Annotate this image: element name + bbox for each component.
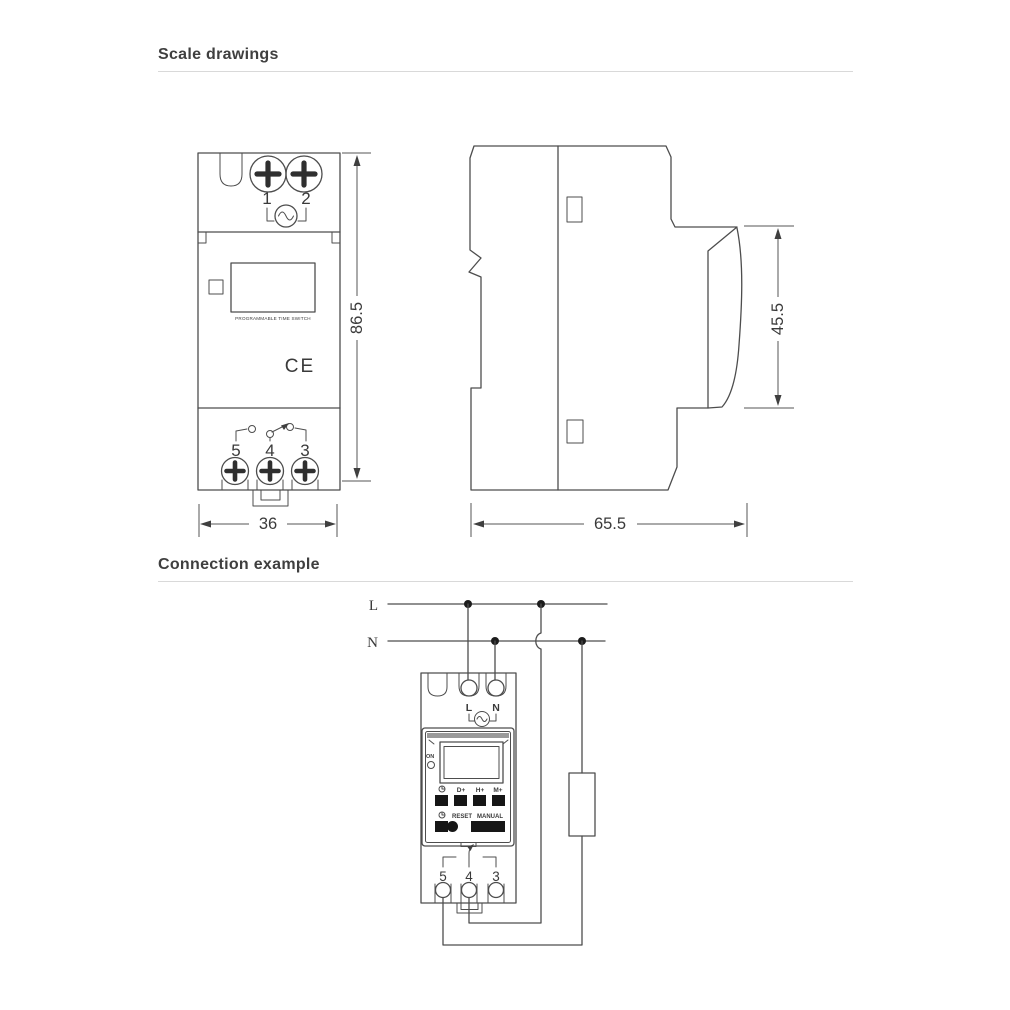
- output-5-label: 5: [439, 869, 447, 884]
- side-notch: [332, 232, 340, 243]
- phillips-screw-icon: [257, 163, 279, 185]
- screw-terminal: [257, 458, 284, 491]
- timer-key: [435, 821, 448, 832]
- timer-icon: [439, 812, 445, 818]
- terminal-slot: [220, 153, 242, 186]
- mounting-hole: [567, 420, 583, 443]
- minute-key-label: M+: [493, 787, 502, 794]
- terminal-1-label: 1: [262, 189, 271, 208]
- dimension-depth: 65.5: [471, 503, 747, 537]
- dimension-width: 36: [199, 504, 337, 537]
- clock-icon: [439, 786, 445, 792]
- dimension-width-value: 36: [259, 515, 277, 533]
- output-terminal-4: [462, 883, 477, 898]
- live-line-label: L: [369, 598, 378, 614]
- relay-contact-symbol: [443, 844, 496, 867]
- day-key: [454, 795, 467, 806]
- on-indicator-label: ON: [426, 754, 434, 760]
- side-profile-outline: [469, 146, 737, 490]
- relay-contact-symbol: [236, 423, 306, 441]
- sine-wave-icon: [477, 717, 487, 722]
- display-caption: PROGRAMMABLE TIME SWITCH: [235, 316, 311, 321]
- dimension-height-value: 86.5: [348, 302, 366, 334]
- dimension-rail: 45.5: [744, 226, 794, 408]
- side-view-drawing: [469, 146, 742, 490]
- day-key-label: D+: [457, 787, 466, 794]
- manual-key-label: MANUAL: [477, 814, 503, 820]
- sine-wave-icon: [279, 212, 294, 220]
- output-terminal-5: [436, 883, 451, 898]
- output-4-label: 4: [465, 869, 473, 884]
- output-3-label: 3: [492, 869, 500, 884]
- technical-drawing: 1 2 PROGRAMMABLE TIME SWITCH CE: [0, 0, 1010, 1010]
- lcd-display-inner: [444, 747, 499, 779]
- front-view-drawing: 1 2 PROGRAMMABLE TIME SWITCH CE: [198, 153, 340, 506]
- phillips-screw-icon: [262, 463, 279, 480]
- lcd-display-outline: [440, 742, 503, 783]
- input-terminal-l: [461, 680, 477, 696]
- phillips-screw-icon: [227, 463, 244, 480]
- wiring-bracket: [298, 208, 306, 221]
- device-l-label: L: [466, 702, 473, 714]
- led-indicator: [428, 762, 435, 769]
- dimension-rail-value: 45.5: [769, 303, 787, 335]
- manual-key: [471, 821, 505, 832]
- screw-terminal: [222, 458, 249, 491]
- page: Scale drawings Connection example 1: [0, 0, 1010, 1010]
- front-button-outline: [209, 280, 223, 294]
- output-terminal-3: [489, 883, 504, 898]
- lcd-display-outline: [231, 263, 315, 312]
- connection-diagram: L N L N: [367, 598, 607, 945]
- hour-key: [473, 795, 486, 806]
- reset-key: [447, 821, 458, 832]
- panel-top-band: [427, 733, 509, 738]
- screw-terminal: [292, 458, 319, 491]
- neutral-line-label: N: [367, 635, 378, 651]
- terminal-slot: [428, 673, 447, 696]
- din-clip-tab: [253, 490, 288, 506]
- ce-mark: CE: [285, 356, 315, 377]
- switched-live-wire: [469, 604, 541, 923]
- terminal-2-label: 2: [301, 189, 310, 208]
- device-n-label: N: [492, 702, 500, 714]
- timer-device: L N ON D+ H+: [421, 673, 516, 913]
- mounting-hole: [567, 197, 582, 222]
- screw-terminal: [286, 156, 322, 192]
- minute-key: [492, 795, 505, 806]
- din-spring-clip: [708, 228, 742, 408]
- screw-terminal: [250, 156, 286, 192]
- hour-key-label: H+: [476, 787, 485, 794]
- dimension-height: 86.5: [342, 153, 371, 481]
- load-resistor: [569, 773, 595, 836]
- wiring-bracket: [267, 208, 274, 221]
- dimension-depth-value: 65.5: [594, 515, 626, 533]
- side-notch: [198, 232, 206, 243]
- phillips-screw-icon: [297, 463, 314, 480]
- input-terminal-n: [488, 680, 504, 696]
- phillips-screw-icon: [293, 163, 315, 185]
- clock-key: [435, 795, 448, 806]
- reset-key-label: RESET: [452, 814, 472, 820]
- din-clip-tab-inner: [261, 490, 280, 500]
